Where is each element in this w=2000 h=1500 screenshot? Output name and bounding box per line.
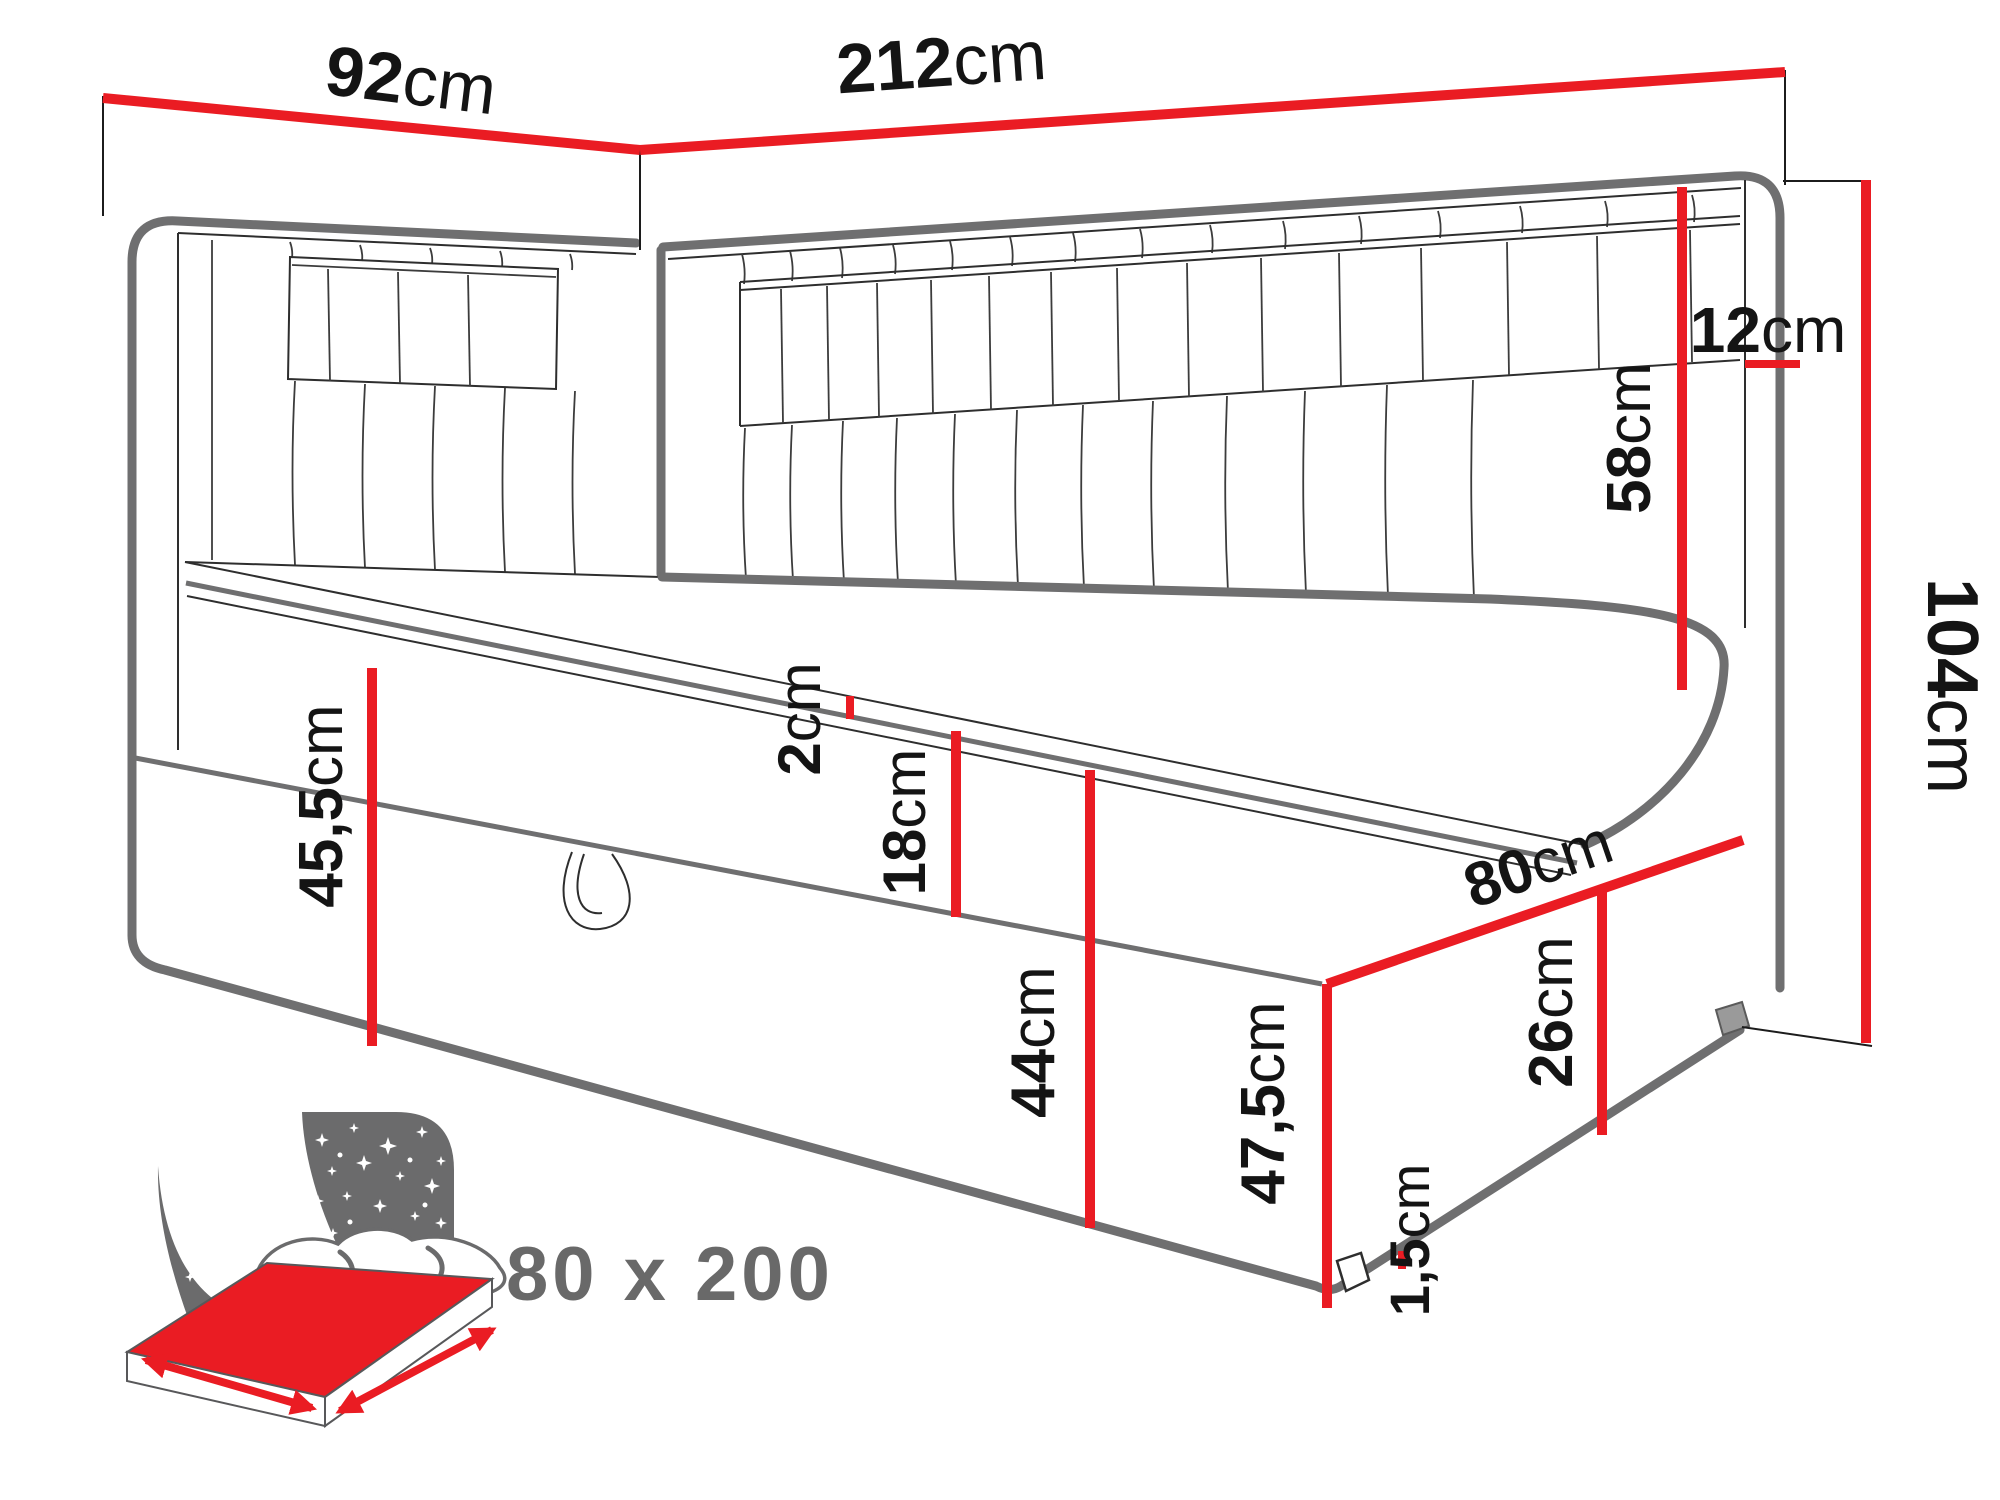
- dim-label-104: 104cm: [1912, 578, 1992, 794]
- dim-label-18: 18cm: [871, 749, 938, 896]
- dimension-labels: 92cm 212cm 12cm 58cm 104cm 2cm 18cm 45,5…: [287, 16, 1992, 1316]
- dim-label-1-5: 1,5cm: [1378, 1164, 1441, 1317]
- dim-label-12: 12cm: [1690, 294, 1847, 366]
- dim-label-212: 212cm: [834, 16, 1049, 108]
- dim-line-212: [640, 72, 1785, 150]
- dim-label-58: 58cm: [1595, 362, 1664, 514]
- mattress-size-icon: 80 x 200: [127, 1112, 834, 1426]
- bed-dimension-diagram: 92cm 212cm 12cm 58cm 104cm 2cm 18cm 45,5…: [0, 0, 2000, 1500]
- mattress-size-label: 80 x 200: [506, 1232, 834, 1317]
- back-headboard-panel: [668, 180, 1745, 628]
- dim-label-26: 26cm: [1517, 936, 1586, 1088]
- drawer-handle: [564, 852, 630, 929]
- dim-label-44: 44cm: [999, 966, 1068, 1118]
- dim-label-47-5: 47,5cm: [1229, 1001, 1298, 1204]
- dim-label-2: 2cm: [766, 662, 833, 775]
- dim-label-92: 92cm: [321, 31, 500, 129]
- diagram-canvas: 92cm 212cm 12cm 58cm 104cm 2cm 18cm 45,5…: [0, 0, 2000, 1500]
- dim-label-45-5: 45,5cm: [287, 704, 356, 907]
